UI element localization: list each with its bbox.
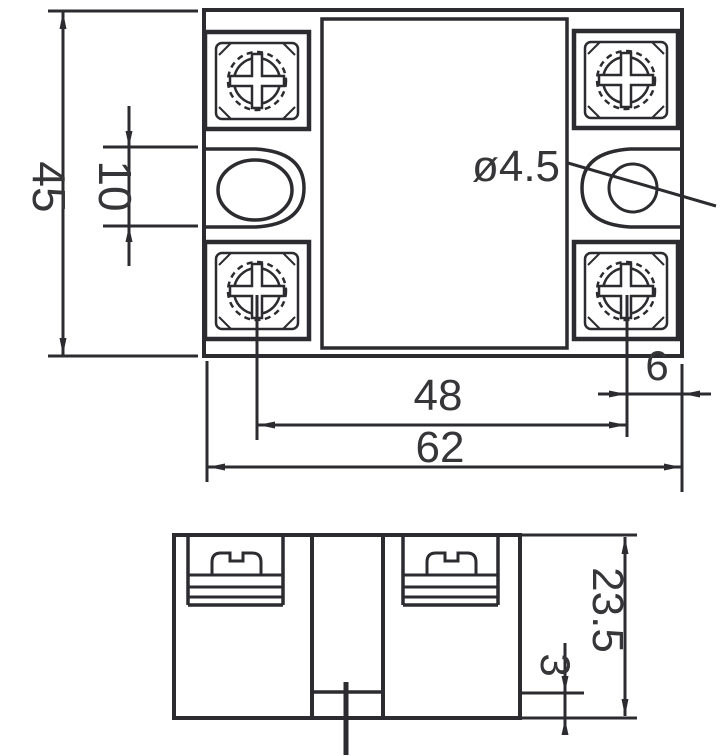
- dimension-side-height: 23.5: [520, 535, 637, 718]
- side-view: 23.5 3: [174, 535, 637, 755]
- dim-48-label: 48: [414, 371, 463, 420]
- dimension-drawing: ø4.5 45 10 48: [0, 0, 722, 756]
- dimension-hole-spacing: 48: [257, 295, 627, 440]
- dim-10-label: 10: [89, 160, 141, 211]
- top-view: ø4.5 45 10 48: [23, 10, 716, 492]
- dimension-slot-length: 10: [89, 106, 198, 266]
- dimension-hole-diameter: ø4.5: [472, 142, 716, 206]
- center-channel: [312, 535, 383, 755]
- leader-line: [568, 163, 716, 206]
- clamp-terminal-left: [188, 535, 283, 605]
- screw-terminal-top-left: [205, 32, 309, 129]
- dim-hole-diameter-label: ø4.5: [472, 142, 560, 191]
- mounting-hole-right: [582, 149, 682, 227]
- dim-23-5-label: 23.5: [583, 567, 632, 653]
- screw-terminal-top-right: [574, 31, 678, 128]
- dim-62-label: 62: [416, 423, 465, 472]
- mounting-slot-left: [204, 149, 304, 227]
- dim-6-label: 6: [645, 342, 668, 389]
- clamp-terminal-right: [403, 535, 498, 605]
- dimension-hole-to-edge: 6: [598, 342, 711, 398]
- dim-3-label: 3: [532, 653, 579, 676]
- slot-hole: [218, 160, 292, 220]
- dimension-base-step: 3: [522, 643, 584, 735]
- drawing-canvas: ø4.5 45 10 48: [0, 0, 722, 756]
- dim-45-label: 45: [23, 161, 75, 212]
